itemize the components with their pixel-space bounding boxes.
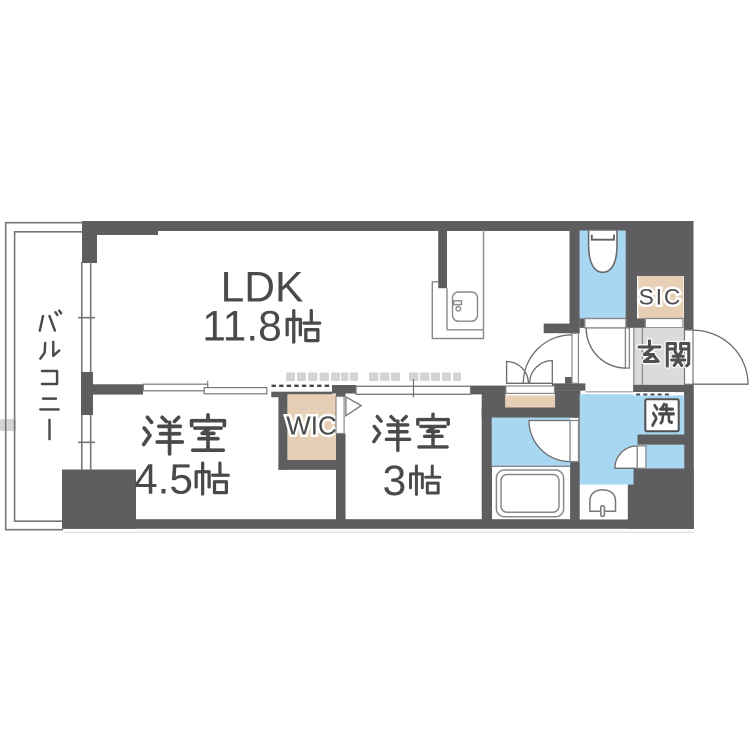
svg-text:4.5: 4.5 bbox=[134, 457, 193, 504]
svg-text:3: 3 bbox=[383, 458, 407, 505]
svg-text:WIC: WIC bbox=[286, 411, 337, 441]
svg-text:11.8: 11.8 bbox=[202, 304, 282, 351]
svg-text:SIC: SIC bbox=[639, 285, 683, 310]
